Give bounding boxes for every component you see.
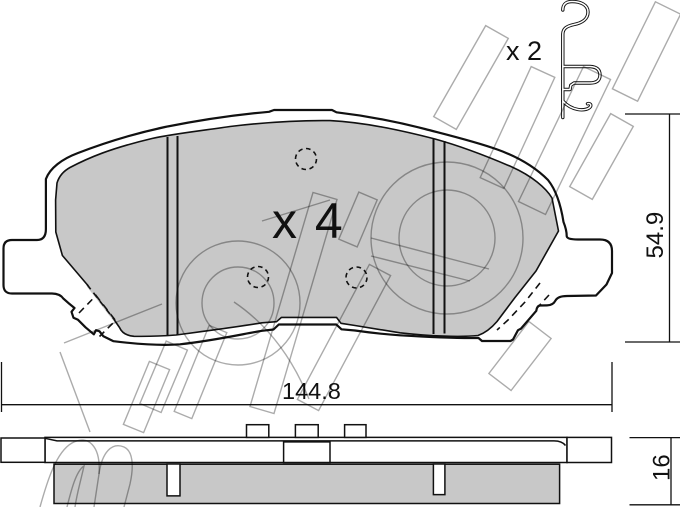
svg-text:144.8: 144.8 — [282, 378, 341, 404]
svg-text:x 4: x 4 — [272, 193, 345, 249]
svg-text:x 2: x 2 — [506, 36, 542, 66]
svg-text:16: 16 — [649, 454, 676, 481]
svg-text:54.9: 54.9 — [642, 212, 669, 259]
